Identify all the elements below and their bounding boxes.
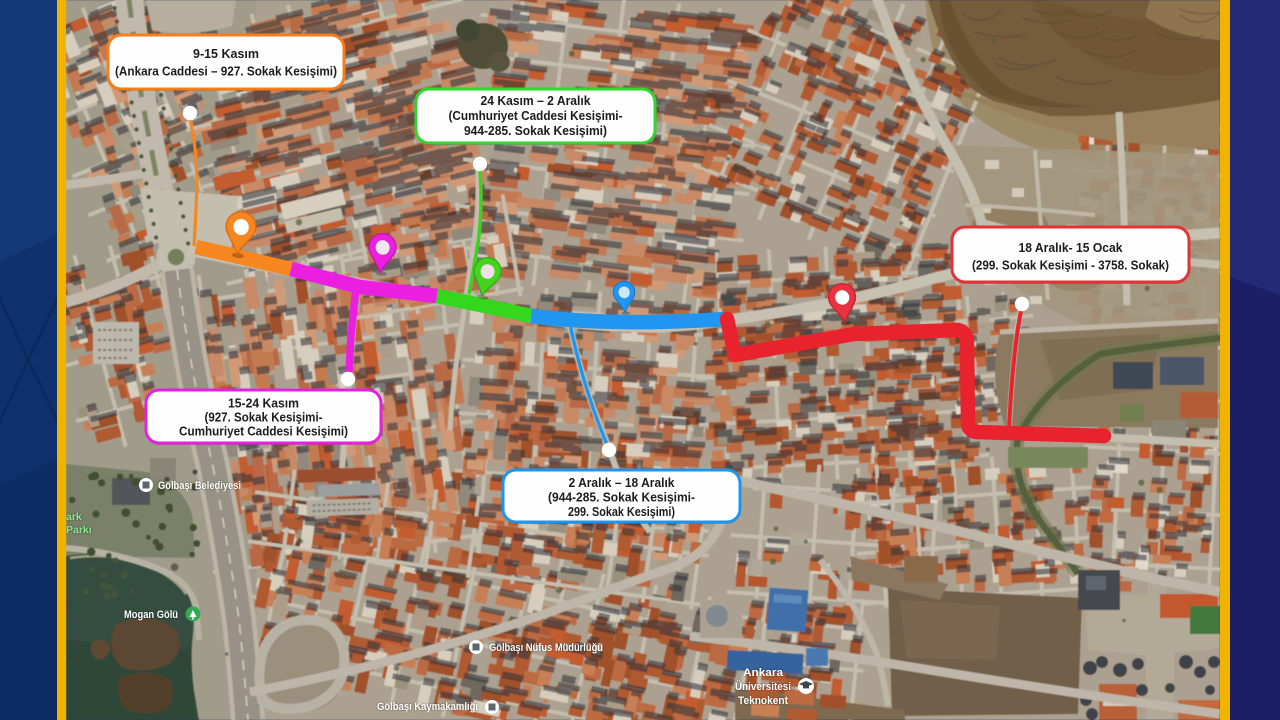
svg-text:Gölbaşı Kaymakamlığı: Gölbaşı Kaymakamlığı [377, 701, 478, 713]
svg-text:18 Aralık- 15 Ocak: 18 Aralık- 15 Ocak [1019, 240, 1124, 255]
svg-text:(Ankara Caddesi – 927. Sokak K: (Ankara Caddesi – 927. Sokak Kesişimi) [115, 64, 337, 79]
svg-text:Parkı: Parkı [66, 524, 92, 536]
svg-text:944-285. Sokak Kesişimi): 944-285. Sokak Kesişimi) [464, 123, 607, 138]
svg-text:15-24 Kasım: 15-24 Kasım [228, 396, 299, 411]
svg-text:24 Kasım – 2 Aralık: 24 Kasım – 2 Aralık [481, 93, 592, 108]
svg-text:Üniversitesi: Üniversitesi [735, 680, 791, 693]
svg-text:(Cumhuriyet Caddesi Kesişimi-: (Cumhuriyet Caddesi Kesişimi- [449, 108, 623, 123]
svg-text:Cumhuriyet Caddesi Kesişimi): Cumhuriyet Caddesi Kesişimi) [179, 424, 348, 439]
svg-text:Gölbaşı Nüfus Müdürlüğü: Gölbaşı Nüfus Müdürlüğü [489, 642, 603, 654]
svg-text:2 Aralık – 18 Aralık: 2 Aralık – 18 Aralık [569, 475, 676, 490]
svg-text:(299. Sokak Kesişimi - 3758. S: (299. Sokak Kesişimi - 3758. Sokak) [972, 258, 1169, 273]
svg-text:Mogan Gölü: Mogan Gölü [124, 609, 178, 621]
svg-text:299. Sokak Kesişimi): 299. Sokak Kesişimi) [568, 504, 675, 519]
svg-text:(944-285. Sokak Kesişimi-: (944-285. Sokak Kesişimi- [548, 490, 695, 505]
svg-text:Ankara: Ankara [743, 667, 784, 679]
svg-text:Gölbaşı Belediyesi: Gölbaşı Belediyesi [158, 480, 241, 492]
svg-text:9-15 Kasım: 9-15 Kasım [193, 46, 259, 61]
svg-text:(927. Sokak Kesişimi-: (927. Sokak Kesişimi- [205, 410, 323, 425]
svg-text:Teknokent: Teknokent [738, 695, 788, 707]
svg-text:ark: ark [66, 511, 82, 523]
